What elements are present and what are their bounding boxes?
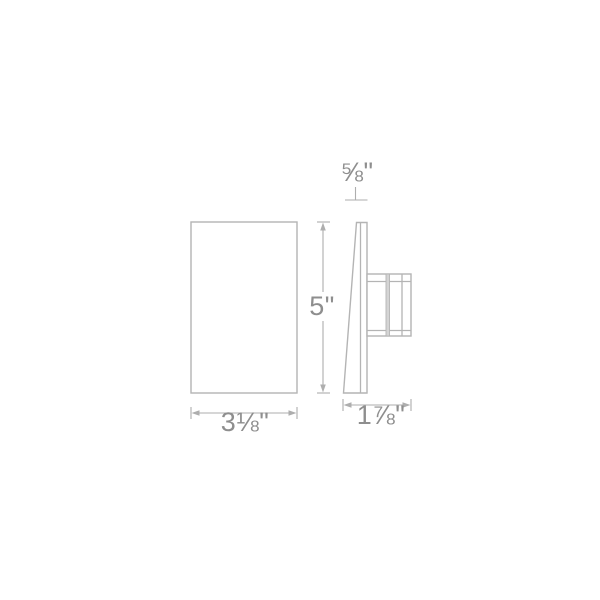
arrow-left-icon [192, 410, 200, 416]
spec-drawing: 5" 3⅛" ⅝" [0, 0, 600, 600]
arrow-right-icon [289, 410, 297, 416]
arrow-left-icon [344, 402, 352, 408]
depth-dimension: 1⅞" [343, 399, 411, 430]
width-dimension: 3⅛" [191, 407, 297, 437]
spec-drawing-canvas: 5" 3⅛" ⅝" [0, 0, 600, 600]
junction-box-mounting-strap [386, 274, 390, 336]
side-view [344, 223, 412, 394]
side-view-wedge-outline [344, 223, 368, 394]
height-dimension-label: 5" [309, 291, 335, 321]
depth-dimension-label: 1⅞" [357, 400, 406, 430]
top-depth-dimension: ⅝" [340, 157, 373, 200]
height-dimension: 5" [309, 222, 335, 393]
front-view [191, 222, 297, 393]
arrow-up-icon [320, 223, 326, 231]
width-dimension-label: 3⅛" [221, 407, 270, 437]
arrow-down-icon [320, 385, 326, 393]
top-depth-dimension-label: ⅝" [340, 157, 373, 187]
front-view-outline [191, 222, 297, 393]
